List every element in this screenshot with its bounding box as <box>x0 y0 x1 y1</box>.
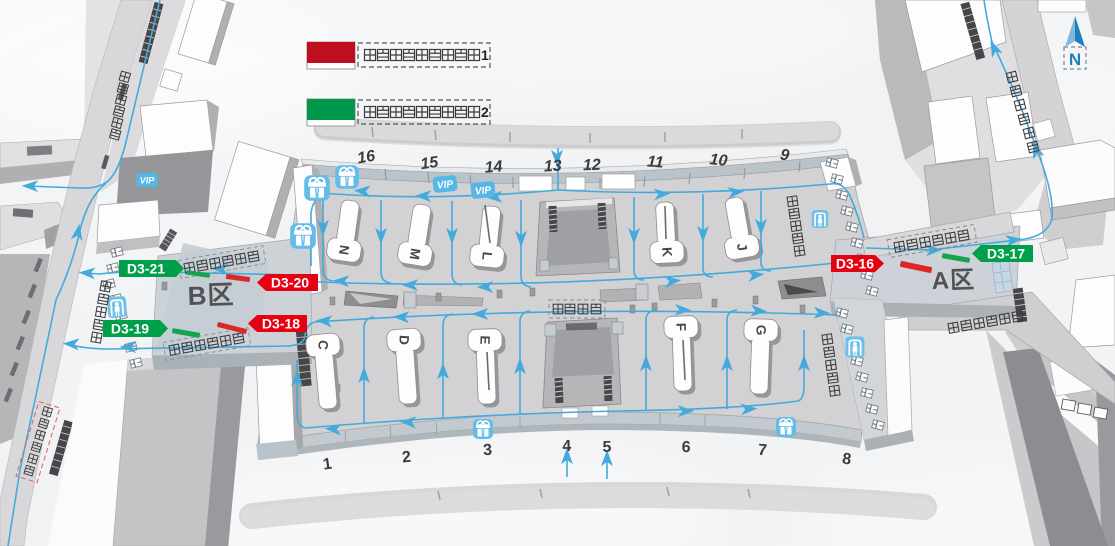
svg-text:16: 16 <box>356 148 377 168</box>
svg-text:5: 5 <box>603 439 612 456</box>
svg-text:15: 15 <box>419 154 440 173</box>
svg-text:L: L <box>479 251 495 261</box>
svg-text:3: 3 <box>483 442 493 460</box>
svg-text:4: 4 <box>562 438 572 455</box>
svg-text:D3-18: D3-18 <box>262 316 300 332</box>
svg-text:14: 14 <box>484 158 503 176</box>
svg-text:D: D <box>396 335 412 346</box>
svg-text:2: 2 <box>401 449 412 467</box>
svg-text:12: 12 <box>583 157 601 175</box>
svg-text:D3-19: D3-19 <box>111 321 149 337</box>
svg-text:B区: B区 <box>187 279 234 311</box>
svg-text:1: 1 <box>481 47 489 63</box>
svg-text:K: K <box>659 247 675 258</box>
svg-text:6: 6 <box>681 439 691 456</box>
svg-text:F: F <box>673 323 688 332</box>
svg-text:13: 13 <box>543 158 562 176</box>
svg-text:11: 11 <box>646 153 664 171</box>
svg-text:2: 2 <box>481 104 489 120</box>
svg-text:N: N <box>336 244 352 256</box>
svg-text:C: C <box>315 339 331 350</box>
svg-text:D3-17: D3-17 <box>987 246 1025 262</box>
svg-text:M: M <box>407 247 424 260</box>
svg-text:G: G <box>753 324 769 336</box>
svg-text:7: 7 <box>757 442 767 460</box>
svg-text:A区: A区 <box>931 267 974 295</box>
svg-text:D3-20: D3-20 <box>271 275 309 291</box>
svg-text:D3-21: D3-21 <box>127 261 165 277</box>
svg-text:N: N <box>1069 50 1081 69</box>
svg-text:10: 10 <box>709 151 729 170</box>
svg-text:D3-16: D3-16 <box>836 256 874 272</box>
svg-text:E: E <box>477 335 492 345</box>
